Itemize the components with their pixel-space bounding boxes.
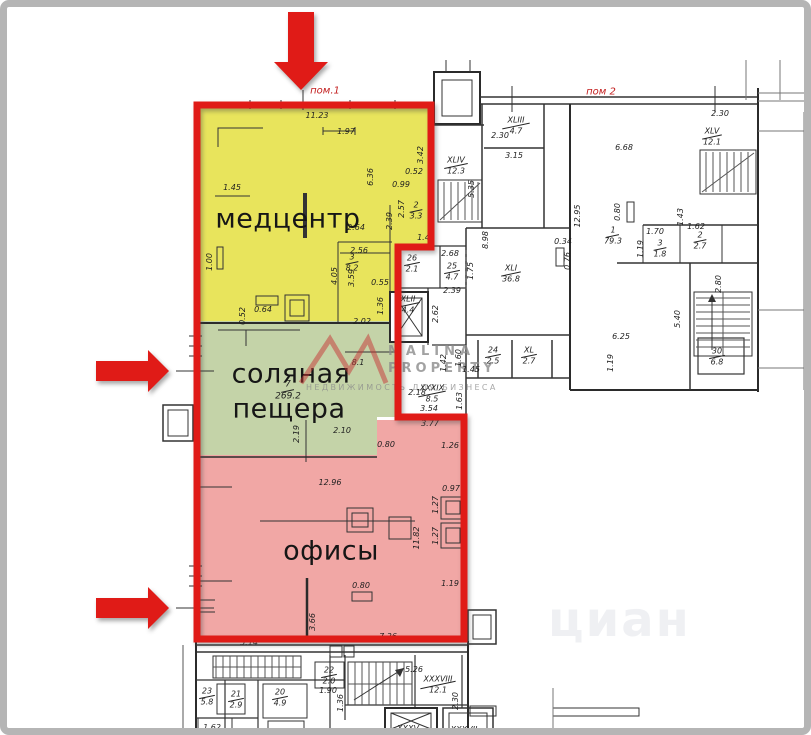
- premise-red-outline: [197, 105, 464, 639]
- brand-logo-m-icon: [301, 339, 386, 383]
- arrow-right-icon: [96, 350, 169, 392]
- annotation-overlay: [0, 0, 811, 735]
- arrow-right-icon: [96, 587, 169, 629]
- arrow-down-icon: [274, 12, 328, 90]
- floorplan-screenshot: циан MALINA PROPERTY НЕДВИЖИМОСТЬ ДЛЯ БИ…: [0, 0, 811, 735]
